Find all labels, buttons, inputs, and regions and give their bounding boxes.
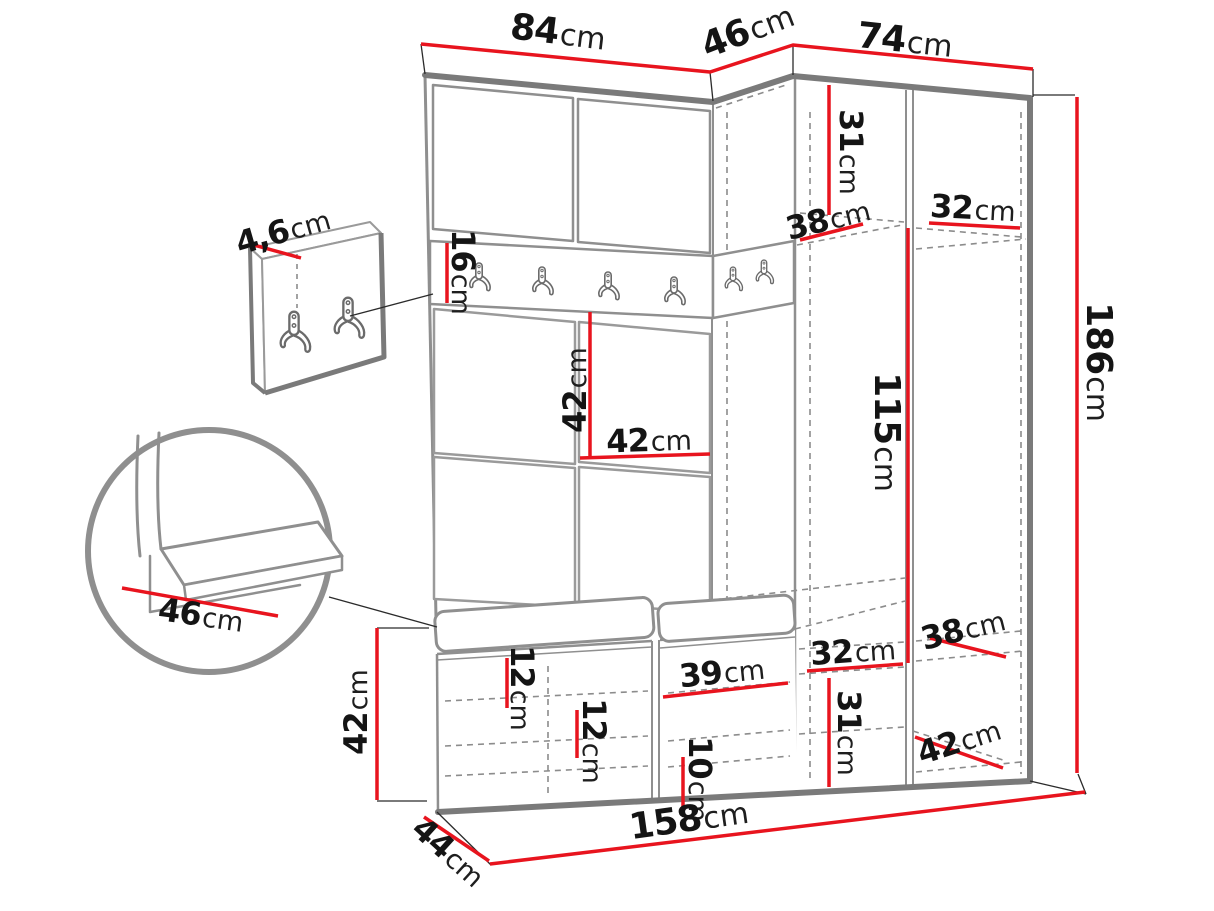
dim-label-32cm-top: 32cm [929, 190, 1016, 226]
dim-unit: cm [701, 796, 751, 837]
back-panel [579, 467, 710, 612]
dim-unit: cm [905, 25, 954, 65]
hook-rail-corner [713, 241, 794, 318]
dim-label-42cm-horiz: 42cm [606, 423, 693, 458]
dim-unit: cm [854, 635, 897, 669]
dim-unit: cm [562, 347, 593, 388]
dim-value: 42 [556, 390, 594, 433]
dim-value: 186 [1078, 302, 1119, 374]
dim-value: 31 [830, 690, 868, 733]
dim-value: 12 [575, 698, 613, 741]
dim-unit: cm [722, 655, 766, 690]
dim-label-31cm-bottom: 31cm [833, 690, 865, 776]
door-right [578, 99, 710, 253]
dim-unit: cm [974, 195, 1017, 228]
dimension-diagram: 84cm 46cm 74cm 31cm 38cm 32cm 16cm 42cm … [0, 0, 1214, 911]
wall-section [425, 75, 794, 618]
dim-label-12cm-a: 12cm [506, 645, 538, 731]
dim-label-31cm-top: 31cm [835, 109, 867, 195]
dim-value: 42 [606, 421, 650, 460]
dim-value: 12 [503, 645, 541, 688]
corner-front-edge [712, 102, 713, 610]
dim-value: 10 [681, 736, 719, 779]
dim-label-42cm-vert: 42cm [559, 347, 591, 433]
seat-detail-leader-line [329, 597, 437, 627]
dim-label-42cm-left: 42cm [340, 669, 372, 755]
dim-value: 115 [866, 372, 907, 444]
dim-unit: cm [831, 735, 862, 776]
dim-value: 39 [677, 653, 723, 695]
dim-label-39cm: 39cm [678, 652, 767, 693]
dim-label-32cm-bottom: 32cm [809, 632, 897, 670]
dim-value: 32 [809, 632, 854, 673]
dim-label-115cm: 115cm [868, 372, 904, 492]
dim-unit: cm [343, 669, 374, 710]
dim-unit: cm [200, 602, 245, 638]
dim-unit: cm [1079, 376, 1114, 422]
dim-value: 46 [156, 590, 203, 634]
dim-label-186cm: 186cm [1080, 302, 1116, 422]
dim-unit: cm [867, 446, 902, 492]
back-panel [434, 457, 575, 607]
back-panel [434, 309, 575, 464]
panel-front [262, 233, 384, 393]
dim-value: 42 [337, 712, 375, 755]
dim-label-12cm-b: 12cm [578, 698, 610, 784]
dim-value: 31 [832, 109, 870, 152]
dim-value: 16 [444, 229, 482, 272]
dim-unit: cm [504, 690, 535, 731]
dim-label-16cm: 16cm [447, 229, 479, 315]
bench [434, 595, 797, 812]
dim-value: 84 [508, 6, 561, 53]
dim-unit: cm [576, 743, 607, 784]
dim-unit: cm [445, 274, 476, 315]
door-left [433, 85, 573, 241]
dim-unit: cm [833, 154, 864, 195]
seat-detail-circle [88, 430, 342, 672]
dim-value: 32 [929, 187, 973, 227]
bench-cushion-right [657, 595, 795, 642]
dim-unit: cm [650, 426, 692, 458]
dim-unit: cm [558, 17, 608, 57]
dim-value: 74 [855, 15, 907, 61]
